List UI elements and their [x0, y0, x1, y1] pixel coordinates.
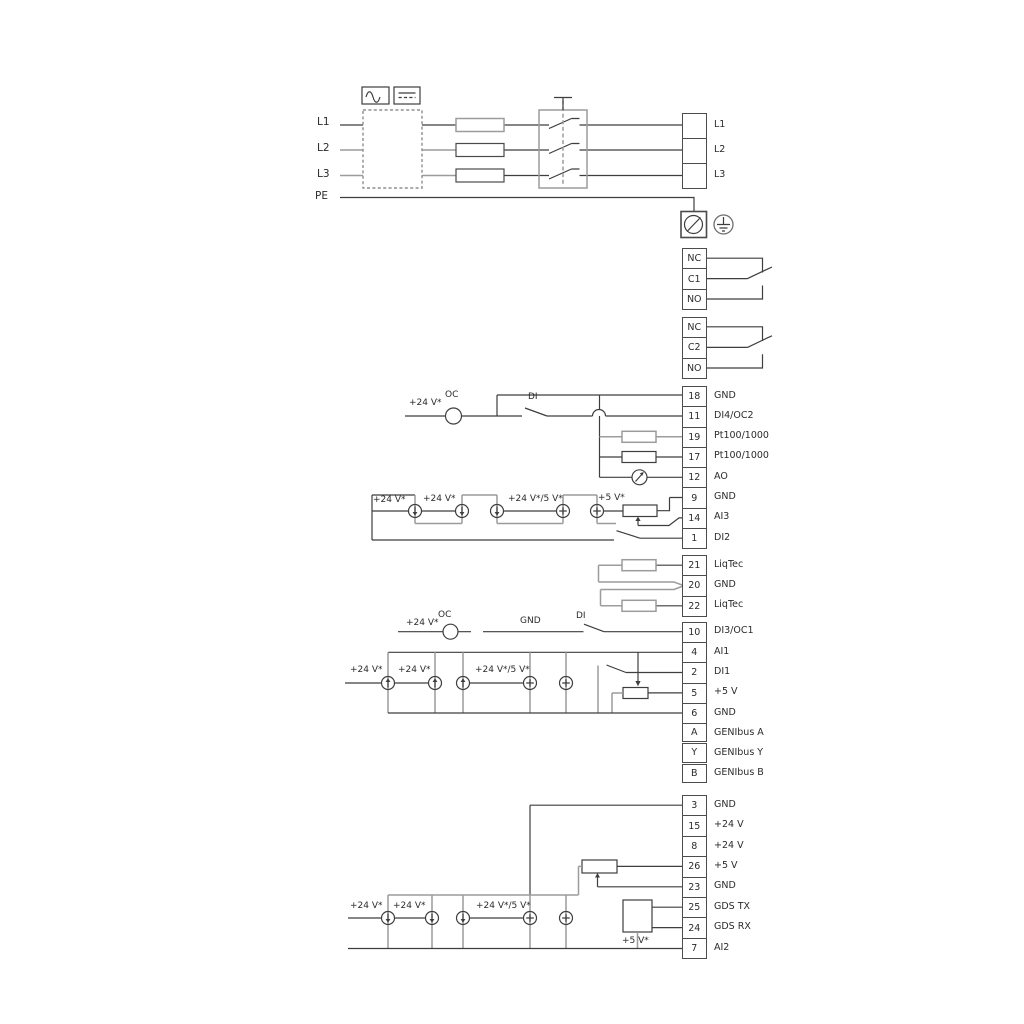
power-line-label-l1: L1: [317, 116, 330, 128]
terminal-number: 22: [688, 601, 700, 612]
liqtec-sensor-2: [622, 600, 656, 611]
oc-output-circle: [446, 408, 462, 424]
v24-label-g1a: +24 V*: [373, 495, 406, 505]
terminal-number: 8: [691, 841, 697, 852]
terminal-power-L3: [682, 163, 707, 189]
terminal-label-l1: L1: [714, 119, 725, 130]
terminal-liqtec-21: 21: [682, 555, 707, 576]
terminal-number: Y: [691, 747, 697, 758]
terminal-label-genibus-b: GENIbus B: [714, 767, 764, 778]
fuse-l3: [456, 169, 504, 182]
sensor-group-ai2-gds: [348, 805, 683, 948]
v24-label-di3: +24 V*: [406, 618, 439, 628]
terminal-number: C1: [688, 274, 701, 285]
terminal-genibus-B: B: [682, 764, 707, 783]
power-line-label-l3: L3: [317, 168, 330, 180]
v24-label-g3a: +24 V*: [350, 901, 383, 911]
terminal-di3-10: 10: [682, 622, 707, 644]
power-line-label-pe: PE: [315, 190, 328, 202]
v24-5v-label-g2: +24 V*/5 V*: [475, 665, 530, 675]
terminal-io1-1: 1: [682, 528, 707, 549]
terminal-label-l3: L3: [714, 169, 725, 180]
earth-ground-icon: [714, 215, 733, 234]
terminal-label-pt100/1000: Pt100/1000: [714, 430, 769, 441]
dc-symbol-box: [394, 87, 420, 104]
terminal-ai1-4: 4: [682, 642, 707, 663]
terminal-power-L2: [682, 138, 707, 164]
terminal-number: 9: [691, 493, 697, 504]
terminal-number: NC: [687, 253, 701, 264]
terminal-io1-9: 9: [682, 487, 707, 508]
liqtec-section: [599, 560, 684, 612]
terminal-label-l2: L2: [714, 144, 725, 155]
di3-oc1-row: [398, 624, 683, 639]
v5-label-gds: +5 V*: [622, 936, 649, 946]
terminal-label-gnd: GND: [714, 491, 736, 502]
terminal-label-+5-v: +5 V: [714, 686, 738, 697]
terminal-label-gnd: GND: [714, 707, 736, 718]
terminal-number: NO: [687, 294, 702, 305]
terminal-bottom-15: 15: [682, 815, 707, 836]
terminal-io1-17: 17: [682, 447, 707, 468]
analog-output-meter-icon: [632, 470, 647, 485]
terminal-label-gds-tx: GDS TX: [714, 901, 750, 912]
terminal-label-gnd: GND: [714, 799, 736, 810]
terminal-number: 11: [688, 411, 700, 422]
v24-label-di4: +24 V*: [409, 398, 442, 408]
relay1-contact-wires: [706, 258, 772, 299]
terminal-bottom-8: 8: [682, 836, 707, 857]
terminal-number: 21: [688, 560, 700, 571]
terminal-number: C2: [688, 342, 701, 353]
terminal-label-di3/oc1: DI3/OC1: [714, 625, 754, 636]
v24-label-g2a: +24 V*: [350, 665, 383, 675]
terminal-label-+24-v: +24 V: [714, 840, 744, 851]
terminal-number: 10: [688, 627, 700, 638]
terminal-number: 17: [688, 452, 700, 463]
potentiometer-ai2: [582, 860, 617, 873]
terminal-label-liqtec: LiqTec: [714, 599, 743, 610]
terminal-relay1-NC: NC: [682, 248, 707, 269]
terminal-io1-14: 14: [682, 508, 707, 529]
terminal-number: 5: [691, 688, 697, 699]
terminal-label-gnd: GND: [714, 880, 736, 891]
terminal-number: A: [691, 727, 698, 738]
pt100-sensor-1: [622, 431, 656, 442]
terminal-label-ai1: AI1: [714, 646, 729, 657]
fuse-l2: [456, 144, 504, 157]
di-label-di3: DI: [576, 611, 586, 621]
terminal-bottom-25: 25: [682, 897, 707, 918]
terminal-number: 2: [691, 667, 697, 678]
terminal-label-genibus-a: GENIbus A: [714, 727, 764, 738]
di4-oc2-section: [405, 395, 683, 485]
terminal-label-pt100/1000: Pt100/1000: [714, 450, 769, 461]
terminal-liqtec-20: 20: [682, 575, 707, 596]
terminal-number: 26: [688, 861, 700, 872]
terminal-power-L1: [682, 113, 707, 139]
terminal-label-ai2: AI2: [714, 942, 729, 953]
terminal-number: 19: [688, 432, 700, 443]
terminal-ai1-6: 6: [682, 703, 707, 724]
terminal-label-ai3: AI3: [714, 511, 729, 522]
terminal-number: B: [691, 768, 698, 779]
relay2-contact-wires: [706, 327, 772, 368]
main-switch: [539, 98, 587, 189]
v24-label-g2b: +24 V*: [398, 665, 431, 675]
terminal-label-ao: AO: [714, 471, 728, 482]
potentiometer-ai3: [623, 505, 657, 517]
rfi-filter-box: [363, 110, 422, 188]
terminal-liqtec-22: 22: [682, 596, 707, 617]
power-line-label-l2: L2: [317, 142, 330, 154]
terminal-bottom-24: 24: [682, 917, 707, 938]
terminal-label-+24-v: +24 V: [714, 819, 744, 830]
pe-screw-terminal: [681, 212, 707, 238]
terminal-number: 14: [688, 513, 700, 524]
v5-label-g1: +5 V*: [598, 493, 625, 503]
terminal-ai1-5: 5: [682, 683, 707, 704]
gds-sensor-box: [623, 900, 652, 932]
terminal-bottom-26: 26: [682, 856, 707, 877]
terminal-io1-19: 19: [682, 427, 707, 448]
terminal-label-liqtec: LiqTec: [714, 559, 743, 570]
terminal-number: NO: [687, 363, 702, 374]
terminal-relay2-C2: C2: [682, 337, 707, 359]
v24-label-g3b: +24 V*: [393, 901, 426, 911]
terminal-number: 6: [691, 708, 697, 719]
terminal-label-gnd: GND: [714, 390, 736, 401]
liqtec-sensor-1: [622, 560, 656, 571]
terminal-number: 15: [688, 821, 700, 832]
terminal-bottom-23: 23: [682, 877, 707, 898]
sensor-group-ai1: [345, 652, 683, 713]
terminal-number: 3: [691, 800, 697, 811]
oc-label-di4: OC: [445, 390, 458, 400]
terminal-number: 1: [691, 533, 697, 544]
terminal-number: 7: [691, 943, 697, 954]
terminal-label-gds-rx: GDS RX: [714, 921, 751, 932]
terminal-label-genibus-y: GENIbus Y: [714, 747, 763, 758]
mains-input-wires: [340, 119, 694, 212]
terminal-bottom-7: 7: [682, 938, 707, 959]
terminal-number: NC: [687, 322, 701, 333]
gnd-label-di3: GND: [520, 616, 541, 626]
terminal-number: 24: [688, 923, 700, 934]
terminal-io1-18: 18: [682, 386, 707, 407]
oc-output-circle-2: [443, 624, 458, 639]
terminal-ai1-2: 2: [682, 662, 707, 683]
terminal-number: 4: [691, 647, 697, 658]
ac-symbol-box: [362, 87, 389, 104]
terminal-label-di1: DI1: [714, 666, 730, 677]
terminal-genibus-Y: Y: [682, 743, 707, 762]
terminal-label-di2: DI2: [714, 532, 730, 543]
terminal-genibus-A: A: [682, 723, 707, 742]
terminal-relay2-NC: NC: [682, 317, 707, 339]
terminal-number: 20: [688, 580, 700, 591]
oc-label-di3: OC: [438, 610, 451, 620]
fuse-l1: [456, 119, 504, 132]
wiring-diagram-page: L1 L2 L3 PE +24 V* OC DI +24 V* +24 V* +…: [0, 0, 1024, 1024]
terminal-relay1-NO: NO: [682, 289, 707, 310]
terminal-number: 18: [688, 391, 700, 402]
potentiometer-ai1: [623, 688, 648, 699]
terminal-relay2-NO: NO: [682, 358, 707, 380]
terminal-bottom-3: 3: [682, 795, 707, 816]
terminal-label-di4/oc2: DI4/OC2: [714, 410, 754, 421]
di-label-di4: DI: [528, 392, 538, 402]
wiring-diagram-canvas: [0, 0, 1024, 1024]
terminal-io1-11: 11: [682, 406, 707, 427]
v24-5v-label-g3: +24 V*/5 V*: [476, 901, 531, 911]
v24-label-g1b: +24 V*: [423, 494, 456, 504]
pt100-sensor-2: [622, 452, 656, 463]
terminal-label-+5-v: +5 V: [714, 860, 738, 871]
terminal-label-gnd: GND: [714, 579, 736, 590]
terminal-number: 23: [688, 882, 700, 893]
terminal-number: 12: [688, 472, 700, 483]
terminal-io1-12: 12: [682, 467, 707, 488]
terminal-number: 25: [688, 902, 700, 913]
terminal-relay1-C1: C1: [682, 268, 707, 289]
v24-5v-label-g1: +24 V*/5 V*: [508, 494, 563, 504]
